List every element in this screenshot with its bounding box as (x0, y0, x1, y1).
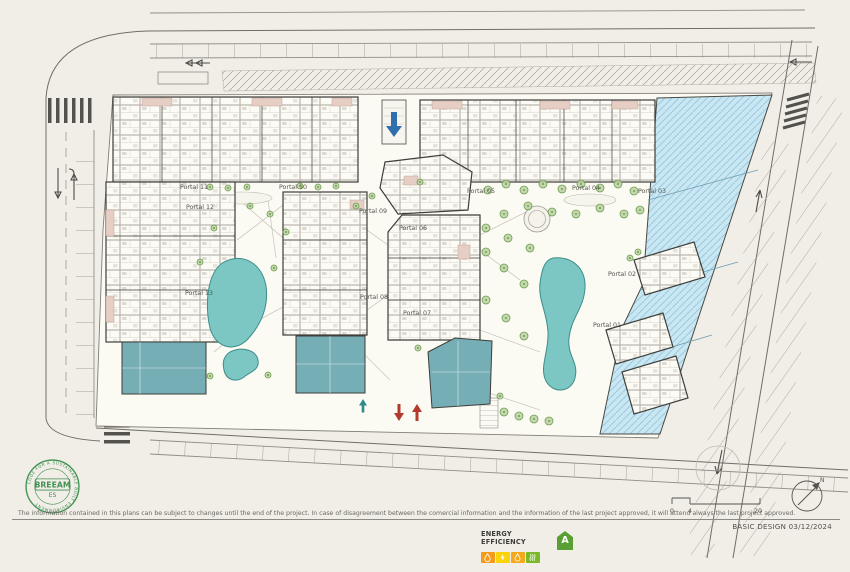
flame-icon (513, 553, 522, 562)
tree-symbol-core (335, 185, 337, 187)
commercial-unit (428, 338, 492, 408)
lane-arrow-left (186, 60, 210, 66)
portal-label: Portal 07 (403, 310, 431, 317)
tree-symbol-core (249, 205, 251, 207)
portal-label: Portal 09 (359, 208, 387, 215)
tree-symbol-core (523, 283, 525, 285)
breeam-seal: CODE FOR A SUSTAINABLE BUILT ENVIRONMENT… (21, 455, 84, 518)
portal-label: Portal 02 (608, 271, 636, 278)
tree-symbol-core (267, 374, 269, 376)
tree-symbol-core (623, 213, 625, 215)
energy-rating-badge: A (557, 531, 573, 550)
tree-symbol-core (246, 186, 248, 188)
tree-symbol-core (371, 195, 373, 197)
tree-symbol-core (227, 187, 229, 189)
bottom-street-parking-bays (150, 440, 848, 492)
tree-symbol-core (639, 209, 641, 211)
breeam-name: BREEAM (34, 481, 70, 490)
energy-rating-letter: A (561, 535, 568, 546)
tree-symbol-core (269, 213, 271, 215)
portal-label: Portal 03 (638, 188, 666, 195)
tree-symbol-core (499, 395, 501, 397)
top-sidewalk-hatch (222, 63, 816, 91)
tree-symbol-core (523, 335, 525, 337)
lawn-oval (564, 194, 616, 206)
site-plan-drawing: Portal 11Portal 10Portal 05Portal 04Port… (0, 0, 850, 572)
tree-symbol-core (529, 247, 531, 249)
crosswalk (46, 98, 93, 123)
tree-symbol-core (629, 257, 631, 259)
top-parking-edge (150, 42, 812, 44)
portal-label: Portal 08 (360, 294, 388, 301)
breeam-region: ES (49, 492, 57, 499)
corner-curve (46, 418, 100, 441)
tree-symbol-core (548, 420, 550, 422)
tree-symbol-core (273, 267, 275, 269)
tree-symbol-core (503, 213, 505, 215)
tree-symbol-core (633, 190, 635, 192)
tree-symbol-core (551, 211, 553, 213)
tree-symbol-core (575, 213, 577, 215)
portal-label: Portal 12 (186, 204, 214, 211)
tree-symbol-core (617, 183, 619, 185)
tree-symbol-core (637, 251, 639, 253)
tree-symbol-core (417, 347, 419, 349)
tree-symbol-core (485, 251, 487, 253)
tree-symbol-core (209, 375, 211, 377)
energy-efficiency-label: ENERGY EFFICIENCY (481, 530, 555, 550)
tree-symbol-core (199, 261, 201, 263)
tree-symbol-core (213, 227, 215, 229)
top-street-curb (148, 28, 815, 31)
portal-label: Portal 10 (279, 184, 307, 191)
heat-waves-icon (528, 553, 537, 562)
tree-symbol-core (599, 207, 601, 209)
energy-meter-water (481, 552, 495, 563)
tree-symbol-core (419, 181, 421, 183)
building-block-top-left (113, 97, 358, 182)
portal-label: Portal 05 (467, 188, 495, 195)
lightning-icon (498, 553, 507, 562)
portal-label: Portal 04 (572, 185, 600, 192)
breeam-seal-graphic: CODE FOR A SUSTAINABLE BUILT ENVIRONMENT… (21, 455, 84, 518)
water-drop-icon (483, 553, 492, 562)
plan-sheet: Portal 11Portal 10Portal 05Portal 04Port… (0, 0, 850, 572)
tree-symbol-core (317, 186, 319, 188)
portal-label: Portal 11 (180, 184, 208, 191)
tree-symbol-core (542, 183, 544, 185)
energy-meters (481, 552, 573, 563)
energy-meter-emissions (526, 552, 540, 563)
crosswalk (783, 94, 809, 128)
tree-symbol-core (505, 183, 507, 185)
design-stamp: BASIC DESIGN 03/12/2024 (732, 523, 832, 531)
building-block-portals-09-08 (283, 192, 367, 335)
tree-symbol-core (527, 205, 529, 207)
footer-rule (12, 519, 840, 520)
building-block-portal-05-annex (380, 155, 472, 214)
tree-symbol-core (561, 188, 563, 190)
tree-symbol-core (518, 415, 520, 417)
top-street-far-curb (150, 10, 805, 13)
tree-symbol-core (533, 418, 535, 420)
left-street-parking-bays (76, 140, 94, 416)
tree-symbol-core (209, 186, 211, 188)
energy-badge: ENERGY EFFICIENCY A (481, 530, 573, 563)
energy-meter-electricity (496, 552, 510, 563)
portal-label: Portal 06 (399, 225, 427, 232)
building-block-portals-06-07 (388, 215, 480, 340)
tree-symbol-core (523, 189, 525, 191)
tree-symbol-core (503, 267, 505, 269)
tree-symbol-core (485, 227, 487, 229)
portal-label: Portal 01 (593, 322, 621, 329)
commercial-unit (296, 336, 365, 393)
tree-symbol-core (507, 237, 509, 239)
disclaimer-text: The information contained in this plans … (18, 510, 795, 517)
tree-symbol-core (503, 411, 505, 413)
energy-meter-heating (511, 552, 525, 563)
lane-arrow-down (55, 168, 61, 198)
tree-symbol-core (355, 205, 357, 207)
corner-curve (46, 31, 148, 98)
bus-bay (158, 72, 208, 84)
tree-symbol-core (485, 299, 487, 301)
tree-symbol-core (505, 317, 507, 319)
tree-symbol-core (285, 231, 287, 233)
portal-label: Portal 13 (185, 290, 213, 297)
north-label: N (820, 477, 825, 484)
lane-arrow-up (69, 169, 77, 200)
